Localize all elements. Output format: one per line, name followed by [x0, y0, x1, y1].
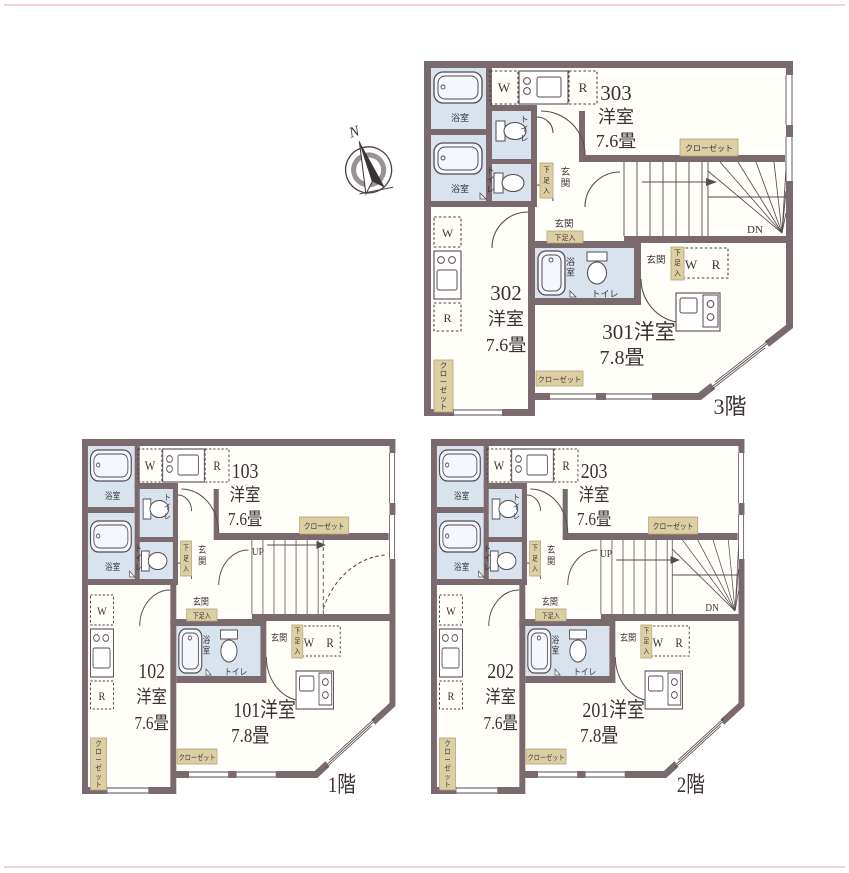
interior-wall	[135, 483, 178, 489]
fridge-label: R	[99, 690, 106, 703]
shoe-box-label: 入	[294, 648, 300, 656]
bath-label: 浴室	[454, 561, 469, 572]
toilet-label: イ	[486, 176, 494, 185]
room-label-number: 303	[600, 81, 632, 105]
toilet-label: イ	[135, 553, 142, 563]
room-label-type: 洋室	[485, 687, 516, 707]
interior-wall	[431, 201, 537, 207]
closet-label: ロ	[444, 749, 450, 757]
interior-wall	[484, 537, 527, 542]
room-label-type: 洋室	[579, 485, 610, 505]
room-label-size: 7.6畳	[134, 713, 168, 733]
interior-wall	[609, 626, 615, 683]
shoe-box-label: 下	[183, 544, 189, 553]
fridge-label: R	[562, 458, 570, 473]
toilet-label: イ	[520, 125, 528, 134]
toilet-label: イ	[513, 502, 520, 512]
sink-icon	[299, 676, 313, 691]
shoe-box-label: 足	[543, 177, 550, 185]
stove-icon	[668, 673, 681, 705]
shoe-box-label: 足	[532, 554, 538, 563]
interior-wall	[601, 614, 741, 621]
shoe-box-label: 下	[294, 627, 300, 636]
washer-label: W	[685, 257, 698, 272]
shoe-box-label: 下足入	[193, 612, 211, 621]
bath-label: 室	[552, 645, 560, 656]
fridge-label: R	[326, 635, 334, 650]
interior-wall	[535, 298, 641, 305]
toilet-icon	[220, 630, 237, 639]
entrance-label: 玄関	[646, 254, 665, 266]
stairs-down-label: DN	[705, 602, 719, 614]
bath-label: 浴室	[451, 112, 469, 123]
closet-label: クローゼット	[538, 375, 582, 384]
sink-icon	[442, 648, 459, 668]
interior-wall	[519, 585, 525, 771]
compass-north-icon: N	[330, 106, 408, 212]
bath-label: 浴室	[454, 490, 469, 501]
toilet-label: ト	[135, 543, 142, 553]
washer-label: W	[442, 226, 454, 240]
sink-icon	[178, 455, 198, 475]
shoe-box-label: 足	[183, 554, 189, 563]
sink-icon	[437, 270, 457, 290]
washer-label: W	[446, 605, 456, 618]
compass-group: N	[332, 117, 398, 200]
shoe-box-label: 足	[294, 637, 300, 646]
fridge-label: R	[579, 80, 588, 95]
sink-icon	[680, 298, 697, 313]
entrance-label: 玄	[198, 543, 206, 555]
floor-label: 2階	[677, 773, 705, 798]
shoe-box-label: 下足入	[555, 234, 576, 242]
interior-wall	[519, 619, 615, 626]
closet-label: ゼ	[444, 763, 450, 773]
toilet-label: トイレ	[224, 667, 247, 677]
washer-label: W	[653, 635, 664, 650]
washer-label: W	[494, 458, 505, 473]
stove-icon	[703, 295, 718, 327]
closet-label: クローゼット	[304, 520, 345, 531]
entrance-label: 玄関	[271, 631, 287, 643]
interior-wall	[437, 579, 527, 585]
room-label-type: 洋室	[136, 687, 167, 707]
sink-icon	[527, 455, 547, 475]
room-label-size: 7.6畳	[577, 509, 611, 529]
toilet-label: ト	[164, 492, 171, 502]
sink-icon	[648, 676, 662, 691]
interior-wall	[634, 248, 641, 305]
interior-wall	[170, 585, 176, 771]
toilet-label: トイレ	[591, 289, 618, 299]
room-label-number: 102	[138, 661, 165, 684]
toilet-label: レ	[520, 134, 528, 143]
entrance-label: 玄関	[542, 595, 558, 607]
stairs-down-label: DN	[747, 224, 763, 236]
interior-wall	[484, 483, 527, 489]
room-label-number: 203	[581, 461, 608, 484]
bath-label: 浴室	[105, 561, 120, 572]
bath-label: 浴	[566, 257, 575, 267]
shoe-box-label: 下	[543, 166, 550, 174]
entrance-label: 玄	[561, 166, 571, 178]
shoe-box-label: 下	[674, 249, 681, 257]
interior-wall	[135, 537, 178, 542]
stove-icon	[319, 673, 332, 705]
toilet-label: レ	[513, 512, 520, 522]
room-label-size: 7.8畳	[580, 725, 618, 748]
closet-label: ト	[440, 402, 447, 411]
closet-label: ト	[95, 782, 101, 790]
toilet-label: レ	[164, 512, 171, 522]
room-label-size: 7.6畳	[483, 713, 517, 733]
closet-label: ク	[95, 740, 101, 749]
washer-label: W	[304, 635, 315, 650]
room-label-size: 7.6畳	[596, 131, 637, 151]
sink-icon	[93, 648, 110, 668]
shoe-box-label: 入	[183, 566, 189, 574]
bath-label: 浴	[203, 634, 211, 645]
floor-label: 3階	[713, 394, 746, 419]
closet-label: クローゼット	[653, 520, 694, 531]
toilet-label: ト	[513, 492, 520, 502]
toilet-icon	[587, 252, 607, 261]
room-label-size: 7.8畳	[231, 725, 269, 748]
toilet-icon	[221, 640, 237, 662]
fridge-label: R	[213, 458, 221, 473]
bath-label: 浴室	[451, 183, 469, 194]
shoe-box-label: 入	[643, 648, 649, 656]
shoe-box-label: 下足入	[542, 612, 560, 621]
closet-label: クローゼット	[179, 752, 216, 762]
toilet-label: レ	[484, 563, 491, 573]
floor-plan-2f: UPDN浴室浴室浴室トイレトイレトイレWRWRWR下足入玄関玄関下足入玄関下足入…	[431, 439, 747, 801]
toilet-icon	[569, 630, 586, 639]
room-label-number: 103	[232, 461, 259, 484]
interior-wall	[486, 159, 537, 164]
bath-label: 浴室	[105, 490, 120, 501]
floor-label: 1階	[328, 773, 356, 798]
shoe-box-label: 足	[643, 637, 649, 646]
room-label-number: 101洋室	[233, 699, 295, 723]
room-label-number: 201洋室	[582, 699, 644, 723]
fridge-label: R	[712, 257, 721, 272]
scan-artifact-bottom	[4, 866, 845, 868]
interior-wall	[528, 207, 535, 393]
stairs-up-label: UP	[600, 548, 612, 560]
room-label-number: 202	[487, 661, 514, 684]
closet-label: ク	[444, 740, 450, 749]
toilet-label: ト	[484, 543, 491, 553]
entrance-label: 玄関	[193, 595, 209, 607]
entrance-label: 関	[547, 556, 555, 567]
closet-label: クローゼット	[685, 143, 733, 153]
closet-label: ッ	[95, 773, 101, 781]
interior-wall	[431, 129, 486, 135]
interior-wall	[437, 507, 484, 513]
washer-label: W	[498, 80, 511, 95]
toilet-label: トイレ	[573, 667, 596, 677]
shoe-box-label: 入	[674, 269, 681, 277]
bath-label: 室	[203, 645, 211, 656]
toilet-label: レ	[486, 185, 494, 194]
fridge-label: R	[675, 635, 683, 650]
closet-label: ー	[95, 757, 101, 765]
interior-wall	[486, 105, 537, 111]
entrance-label: 関	[198, 556, 206, 567]
shoe-box-label: 足	[674, 259, 681, 267]
washer-label: W	[145, 458, 156, 473]
compass-north-label: N	[346, 123, 362, 142]
toilet-label: ト	[486, 166, 494, 175]
interior-wall	[260, 626, 266, 683]
interior-wall	[170, 619, 266, 626]
scan-artifact-top	[4, 4, 845, 6]
bath-label: 室	[566, 267, 575, 278]
interior-wall	[88, 579, 178, 585]
toilet-label: レ	[135, 563, 142, 573]
entrance-label: 玄関	[620, 631, 636, 643]
fridge-label: R	[448, 690, 455, 703]
shoe-box-label: 下	[643, 627, 649, 636]
toilet-label: イ	[484, 553, 491, 563]
interior-wall	[528, 241, 641, 248]
shoe-box-label: 入	[532, 566, 538, 574]
floor-plan-1f: UP浴室浴室浴室トイレトイレトイレWRWRWR下足入玄関玄関下足入玄関下足入クロ…	[82, 439, 398, 801]
room-label-type: 洋室	[230, 485, 261, 505]
entrance-label: 関	[561, 179, 571, 190]
fridge-label: R	[443, 311, 451, 325]
room-label-size: 7.6畳	[486, 335, 527, 355]
room-label-type: 洋室	[598, 107, 634, 127]
closet-label: ッ	[444, 773, 450, 781]
washer-label: W	[97, 605, 107, 618]
interior-wall	[525, 676, 615, 683]
floor-plan-3f: DN浴室浴室浴室トイレトイレトイレWRWRWR下足入玄関玄関下足入玄関下足入クロ…	[424, 61, 796, 423]
closet-label: ー	[444, 757, 450, 765]
interior-wall	[624, 236, 789, 243]
floorplan-sheet: N DN浴室浴室浴室トイレトイレトイレWRWRWR下足入玄関玄関下足入玄関下足入…	[0, 0, 849, 873]
room-label-size: 7.8畳	[600, 347, 645, 369]
toilet-icon	[148, 553, 167, 570]
closet-label: ゼ	[95, 763, 101, 773]
stairs-up-label: UP	[252, 546, 264, 558]
entrance-label: 玄関	[554, 218, 573, 230]
bath-label: 浴	[552, 634, 560, 645]
shoe-box-label: 下	[532, 544, 538, 553]
closet-label: クローゼット	[528, 752, 565, 762]
toilet-icon	[588, 262, 607, 284]
toilet-label: イ	[164, 502, 171, 512]
room-label-size: 7.6畳	[228, 509, 262, 529]
interior-wall	[88, 507, 135, 513]
room-label-type: 洋室	[488, 309, 524, 329]
closet-label: ト	[444, 782, 450, 790]
closet-label: ロ	[95, 749, 101, 757]
room-label-number: 302	[490, 281, 522, 305]
room-label-number: 301洋室	[602, 320, 676, 344]
sink-icon	[537, 77, 561, 97]
toilet-icon	[570, 640, 586, 662]
shoe-box-label: 入	[543, 187, 550, 195]
entrance-label: 玄	[547, 543, 555, 555]
toilet-icon	[502, 175, 524, 192]
toilet-icon	[497, 553, 516, 570]
interior-wall	[176, 676, 266, 683]
toilet-label: ト	[520, 115, 528, 124]
interior-wall	[252, 614, 392, 621]
